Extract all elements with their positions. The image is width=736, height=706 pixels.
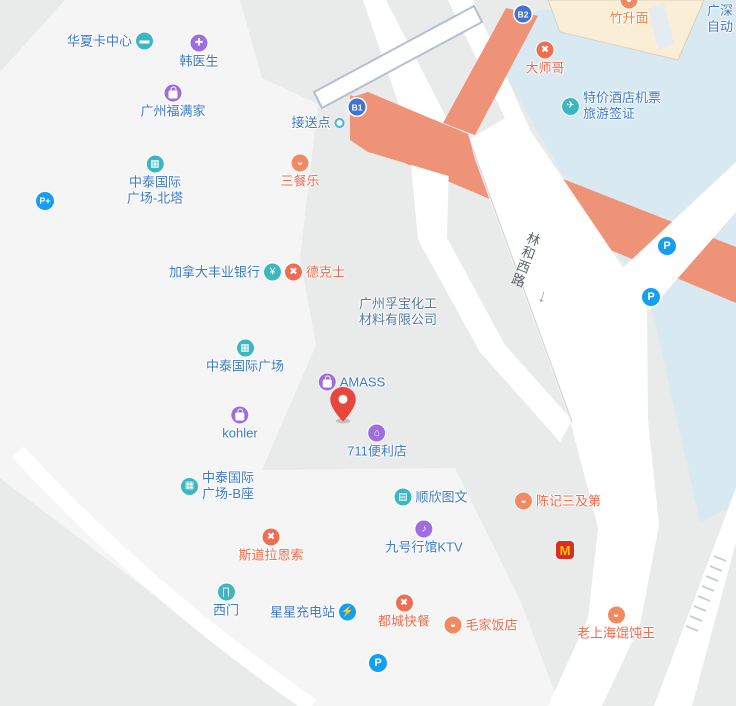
parking-icon[interactable]: P (658, 237, 676, 255)
poi-scotiabank[interactable]: 加拿大丰业银行 ¥ (169, 264, 281, 281)
poi-ducheng[interactable]: ✖ 都城快餐 (378, 595, 430, 630)
poi-label: 竹升面 (609, 11, 648, 27)
poi-travel-agency[interactable]: ✈ 特价酒店机票 旅游签证 (562, 90, 661, 122)
bowl-icon: ◒ (444, 617, 461, 634)
parking-icon[interactable]: P (642, 288, 660, 306)
poi-label-line2: 广场-北塔 (127, 191, 183, 207)
poi-zhongtai-tower-b[interactable]: ▦ 中泰国际 广场-B座 (181, 470, 254, 502)
poi-label: 接送点 (291, 115, 330, 131)
map-canvas[interactable]: 林和西路 ↓ 广深 自动 华夏卡中心 ▬ ✚ 韩医生 广州福满家 ▦ 中泰国际 … (0, 0, 736, 706)
charger-icon: ⚡ (339, 604, 356, 621)
mcdonalds-icon: M (556, 541, 574, 559)
poi-label-line2: 材料有限公司 (359, 312, 437, 328)
building-icon: ▦ (236, 340, 253, 357)
poi-label-line1: 中泰国际 (129, 175, 181, 191)
poi-pickup-point[interactable]: 接送点 (291, 115, 344, 131)
shopping-bag-icon (231, 407, 248, 424)
pickup-point-dot-icon (335, 118, 345, 128)
doctor-icon: ✚ (190, 35, 207, 52)
cutlery-icon: ✖ (285, 264, 302, 281)
corner-note-line2: 自动 (707, 19, 733, 35)
poi-label: 九号行馆KTV (385, 540, 462, 556)
poi-laoshanghai[interactable]: ◒ 老上海馄饨王 (577, 607, 655, 642)
poi-label: 三餐乐 (280, 174, 319, 190)
poi-chenji[interactable]: ◒ 陈记三及第 (515, 493, 601, 510)
poi-label: 都城快餐 (378, 614, 430, 630)
poi-label-line1: 特价酒店机票 (583, 90, 661, 106)
poi-west-gate[interactable]: ∏ 西门 (213, 584, 239, 619)
store-icon: ⌂ (368, 425, 385, 442)
corner-note-line1: 广深 (707, 3, 733, 19)
poi-label-line1: 中泰国际 (202, 470, 254, 486)
poi-label: 大师哥 (525, 61, 564, 77)
poi-label: 斯道拉恩索 (238, 548, 303, 564)
poi-dekeshi[interactable]: ✖ 德克士 (285, 264, 345, 281)
poi-label: 加拿大丰业银行 (169, 264, 260, 280)
poi-label-line1: 广州孚宝化工 (359, 296, 437, 312)
poi-label: 711便利店 (347, 444, 407, 460)
poi-711-store[interactable]: ⌂ 711便利店 (347, 425, 407, 460)
poi-zhongtai-north-tower[interactable]: ▦ 中泰国际 广场-北塔 (127, 156, 183, 207)
poi-label: 星星充电站 (270, 604, 335, 620)
bowl-icon: ◒ (515, 493, 532, 510)
poi-label: 德克士 (306, 264, 345, 280)
cutlery-icon: ✖ (536, 42, 553, 59)
poi-label: 老上海馄饨王 (577, 626, 655, 642)
cutlery-icon: ✖ (395, 595, 412, 612)
poi-fumanjia[interactable]: 广州福满家 (140, 85, 205, 120)
poi-charging-station[interactable]: 星星充电站 ⚡ (270, 604, 356, 621)
bowl-icon: ◒ (607, 607, 624, 624)
ticket-icon: ✈ (562, 98, 579, 115)
poi-label: 广州福满家 (140, 104, 205, 120)
parking-plus-icon[interactable]: P+ (36, 192, 54, 210)
building-icon: ▦ (181, 478, 198, 495)
poi-label: kohler (222, 426, 257, 442)
poi-label: 西门 (213, 603, 239, 619)
parking-icon[interactable]: P (369, 654, 387, 672)
microphone-icon: ♪ (415, 521, 432, 538)
poi-label-line2: 广场-B座 (202, 486, 254, 502)
shopping-bag-icon (164, 85, 181, 102)
poi-label: 顺欣图文 (415, 489, 467, 505)
poi-label: 韩医生 (179, 54, 218, 70)
metro-exit-b2-icon[interactable]: B2 (515, 6, 532, 23)
poi-kohler[interactable]: kohler (222, 407, 257, 442)
poi-label: 陈记三及第 (536, 493, 601, 509)
poi-zhushengmian[interactable]: ◒ 竹升面 (609, 0, 648, 27)
poi-sidaolaensuo[interactable]: ✖ 斯道拉恩索 (238, 529, 303, 564)
bowl-icon: ◒ (291, 155, 308, 172)
poi-huaxia-card-center[interactable]: 华夏卡中心 ▬ (67, 33, 153, 50)
bowl-icon: ◒ (620, 0, 637, 9)
poi-label: 中泰国际广场 (206, 359, 284, 375)
poi-maojia[interactable]: ◒ 毛家饭店 (444, 617, 517, 634)
poi-sancanle[interactable]: ◒ 三餐乐 (280, 155, 319, 190)
poi-ktv[interactable]: ♪ 九号行馆KTV (385, 521, 462, 556)
yen-bank-icon: ¥ (264, 264, 281, 281)
poi-han-doctor[interactable]: ✚ 韩医生 (179, 35, 218, 70)
poi-label-line2: 旅游签证 (583, 106, 661, 122)
poi-mcdonalds[interactable]: M (556, 541, 574, 559)
location-pin[interactable] (330, 387, 356, 422)
poi-corner-note: 广深 自动 (707, 3, 733, 35)
poi-zhongtai-plaza[interactable]: ▦ 中泰国际广场 (206, 340, 284, 375)
poi-label: 毛家饭店 (465, 617, 517, 633)
poi-fubao-chemical[interactable]: 广州孚宝化工 材料有限公司 (359, 296, 437, 328)
gate-icon: ∏ (217, 584, 234, 601)
building-icon: ▦ (147, 156, 164, 173)
printer-icon: ▤ (394, 489, 411, 506)
cutlery-icon: ✖ (262, 529, 279, 546)
poi-shunxin-print[interactable]: ▤ 顺欣图文 (394, 489, 467, 506)
bank-card-icon: ▬ (136, 33, 153, 50)
poi-dashige[interactable]: ✖ 大师哥 (525, 42, 564, 77)
poi-label: 华夏卡中心 (67, 33, 132, 49)
metro-exit-b1-icon[interactable]: B1 (349, 99, 366, 116)
